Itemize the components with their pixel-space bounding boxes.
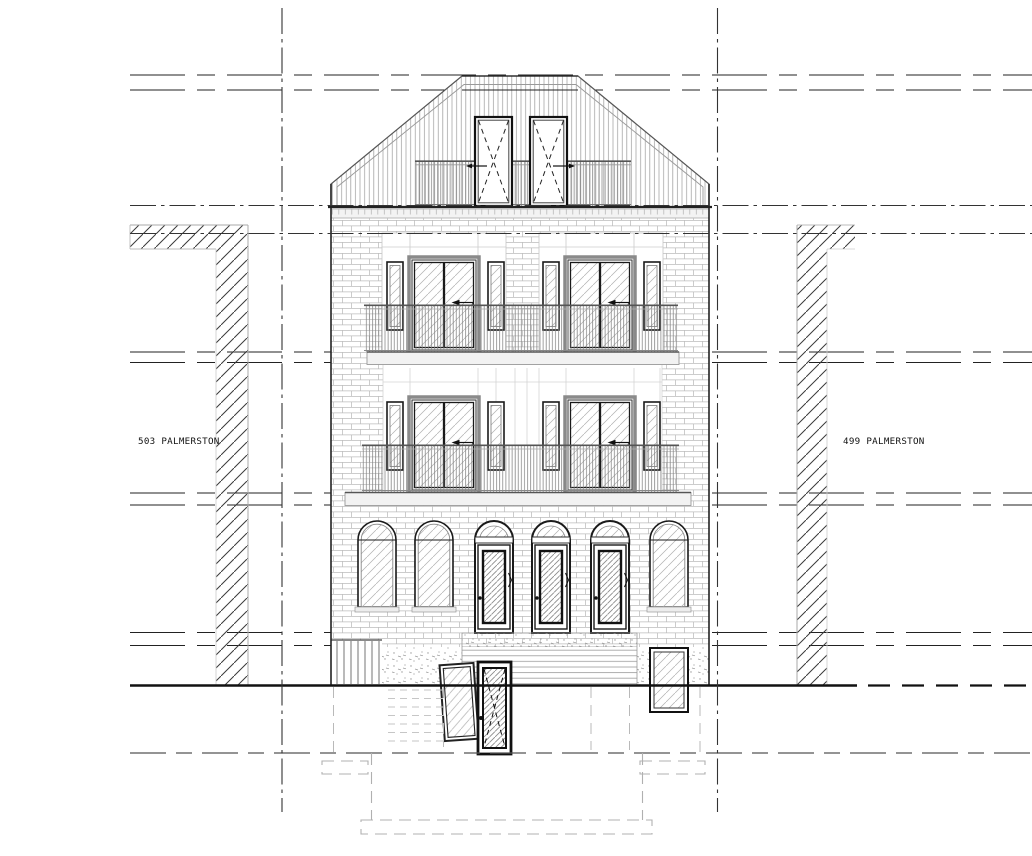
window-sill — [412, 607, 456, 612]
basement-window — [650, 648, 688, 712]
entry-door — [532, 521, 570, 633]
second-floor-balcony-railing — [362, 445, 679, 492]
neighbor-wall-left — [130, 225, 248, 685]
window-sill — [647, 607, 691, 612]
roof-deck-railing — [415, 161, 631, 206]
entry-door — [591, 521, 629, 633]
mansard-roof — [331, 76, 709, 207]
arched-window — [650, 521, 688, 607]
main-facade — [328, 184, 712, 685]
basement-door-open-leaf — [440, 663, 479, 741]
right-neighbor-label: 499 PALMERSTON — [843, 436, 925, 447]
hidden-stair-steps — [388, 690, 443, 741]
third-floor-balcony-railing — [364, 305, 678, 352]
third-floor-balcony-slab — [367, 352, 679, 365]
foundation-hidden-lines — [130, 687, 1032, 834]
arched-window — [415, 521, 453, 607]
stone-band — [462, 633, 637, 647]
elevation-drawing-sheet: 503 PALMERSTON 499 PALMERSTON — [0, 0, 1032, 856]
neighbor-wall-right — [797, 225, 855, 685]
roof-access-door — [475, 117, 512, 206]
window-sill — [355, 607, 399, 612]
front-elevation-drawing: 503 PALMERSTON 499 PALMERSTON — [0, 0, 1032, 856]
roof-access-door — [530, 117, 567, 206]
basement-entry-door — [440, 662, 511, 754]
cornice-band — [331, 209, 709, 218]
arched-window — [358, 521, 396, 607]
entry-door — [475, 521, 513, 633]
second-floor-balcony-slab — [345, 493, 691, 506]
footing-outline — [322, 753, 705, 834]
left-neighbor-label: 503 PALMERSTON — [138, 436, 220, 447]
door-handle — [479, 716, 483, 720]
basement-stair-railing — [331, 640, 382, 685]
